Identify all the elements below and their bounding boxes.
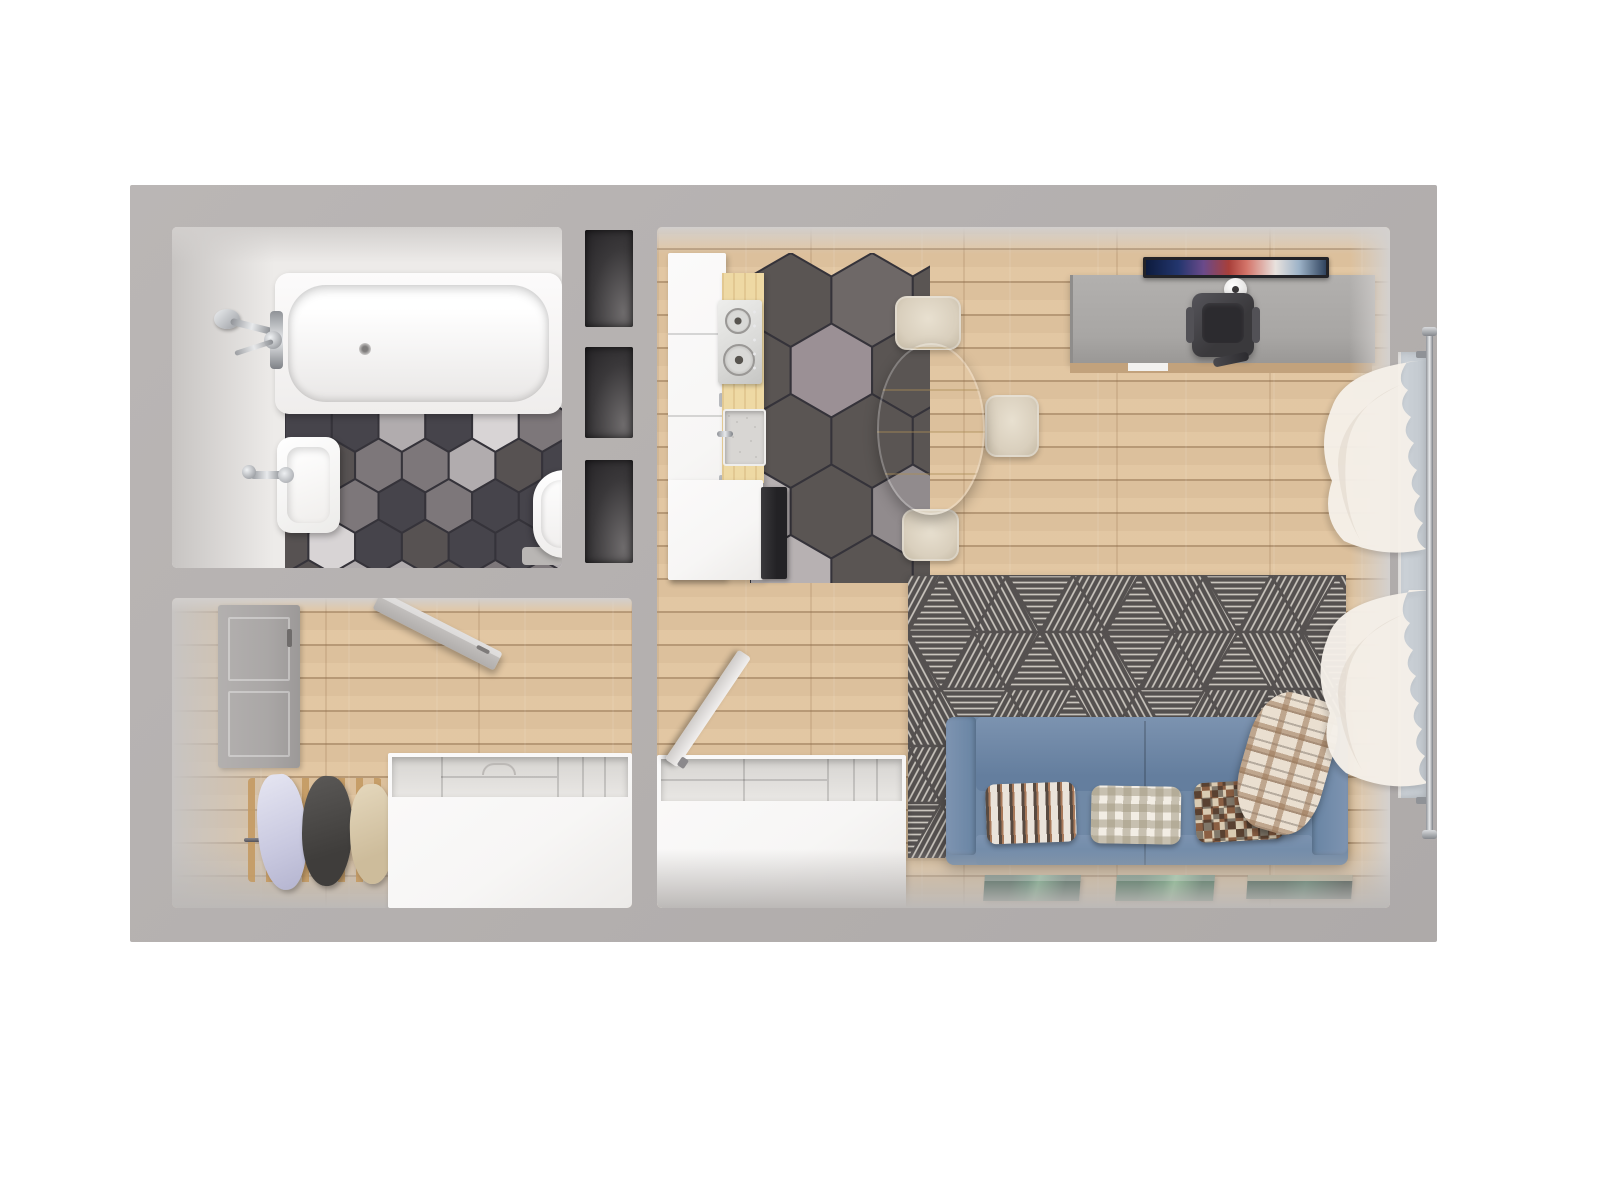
dining-chair-right xyxy=(985,395,1039,457)
bathtub-basin xyxy=(288,285,549,402)
washbasin-bowl xyxy=(287,447,330,523)
desk-chair-armrest-right xyxy=(1252,307,1260,343)
dining-chair-top xyxy=(895,296,961,350)
apartment-walls xyxy=(130,185,1437,942)
desk-chair-seat xyxy=(1202,303,1244,343)
mainroom-wardrobe-compartments xyxy=(661,759,902,801)
wall-niche-bottom xyxy=(585,460,633,563)
entry-door-panel-bottom xyxy=(228,691,290,757)
bathroom-wall-shade-left xyxy=(172,227,292,568)
mainroom-wall-shade-bottom xyxy=(657,844,1390,908)
hallway xyxy=(172,598,632,908)
leaning-board xyxy=(665,650,751,768)
bathroom-wall-shade-top xyxy=(172,227,562,267)
gas-hob xyxy=(718,300,762,384)
entry-door-handle xyxy=(287,629,292,647)
gingham-pillow xyxy=(1091,785,1182,845)
sheer-curtains xyxy=(1280,345,1440,815)
monitor xyxy=(1143,257,1329,278)
floorplan-scene xyxy=(0,0,1600,1200)
curtain-rod-finial-bottom xyxy=(1422,830,1437,839)
sofa-armrest-left xyxy=(946,717,976,855)
washbasin xyxy=(277,437,340,533)
kitchen-faucet xyxy=(717,431,733,437)
curtain-rod-finial-top xyxy=(1422,327,1437,336)
hallway-wardrobe-compartments xyxy=(392,757,628,797)
black-appliance xyxy=(761,487,787,579)
hob-burner-small xyxy=(725,308,751,334)
hallway-wardrobe xyxy=(388,753,632,908)
bathroom xyxy=(172,227,562,568)
patterned-pillow xyxy=(985,781,1077,844)
wardrobe-hanger-wire xyxy=(482,763,516,775)
dining-table xyxy=(877,343,985,515)
wall-niche-middle xyxy=(585,347,633,438)
desk-chair-armrest-left xyxy=(1186,307,1194,343)
kitchen-sink xyxy=(723,409,766,466)
hob-control-strip xyxy=(750,304,759,380)
toilet-lid-line xyxy=(541,480,561,548)
dining-chair-bottom xyxy=(902,509,959,561)
bathtub xyxy=(275,273,562,414)
entry-door-panel-top xyxy=(228,617,290,681)
desk-lamp-center xyxy=(1232,286,1239,293)
desk-drawer-front xyxy=(1128,363,1168,371)
sheer-curtain-bottom xyxy=(1320,590,1430,786)
entry-door xyxy=(218,605,300,768)
curtain-rod xyxy=(1426,333,1433,833)
desk-chair xyxy=(1192,293,1254,357)
monitor-screen xyxy=(1146,260,1326,275)
kitchen-lower-cabinet xyxy=(668,480,763,580)
bathtub-drain xyxy=(359,343,371,355)
washbasin-faucet-spout xyxy=(278,467,294,483)
wall-niche-top xyxy=(585,230,633,327)
washbasin-faucet-handle xyxy=(242,465,256,479)
